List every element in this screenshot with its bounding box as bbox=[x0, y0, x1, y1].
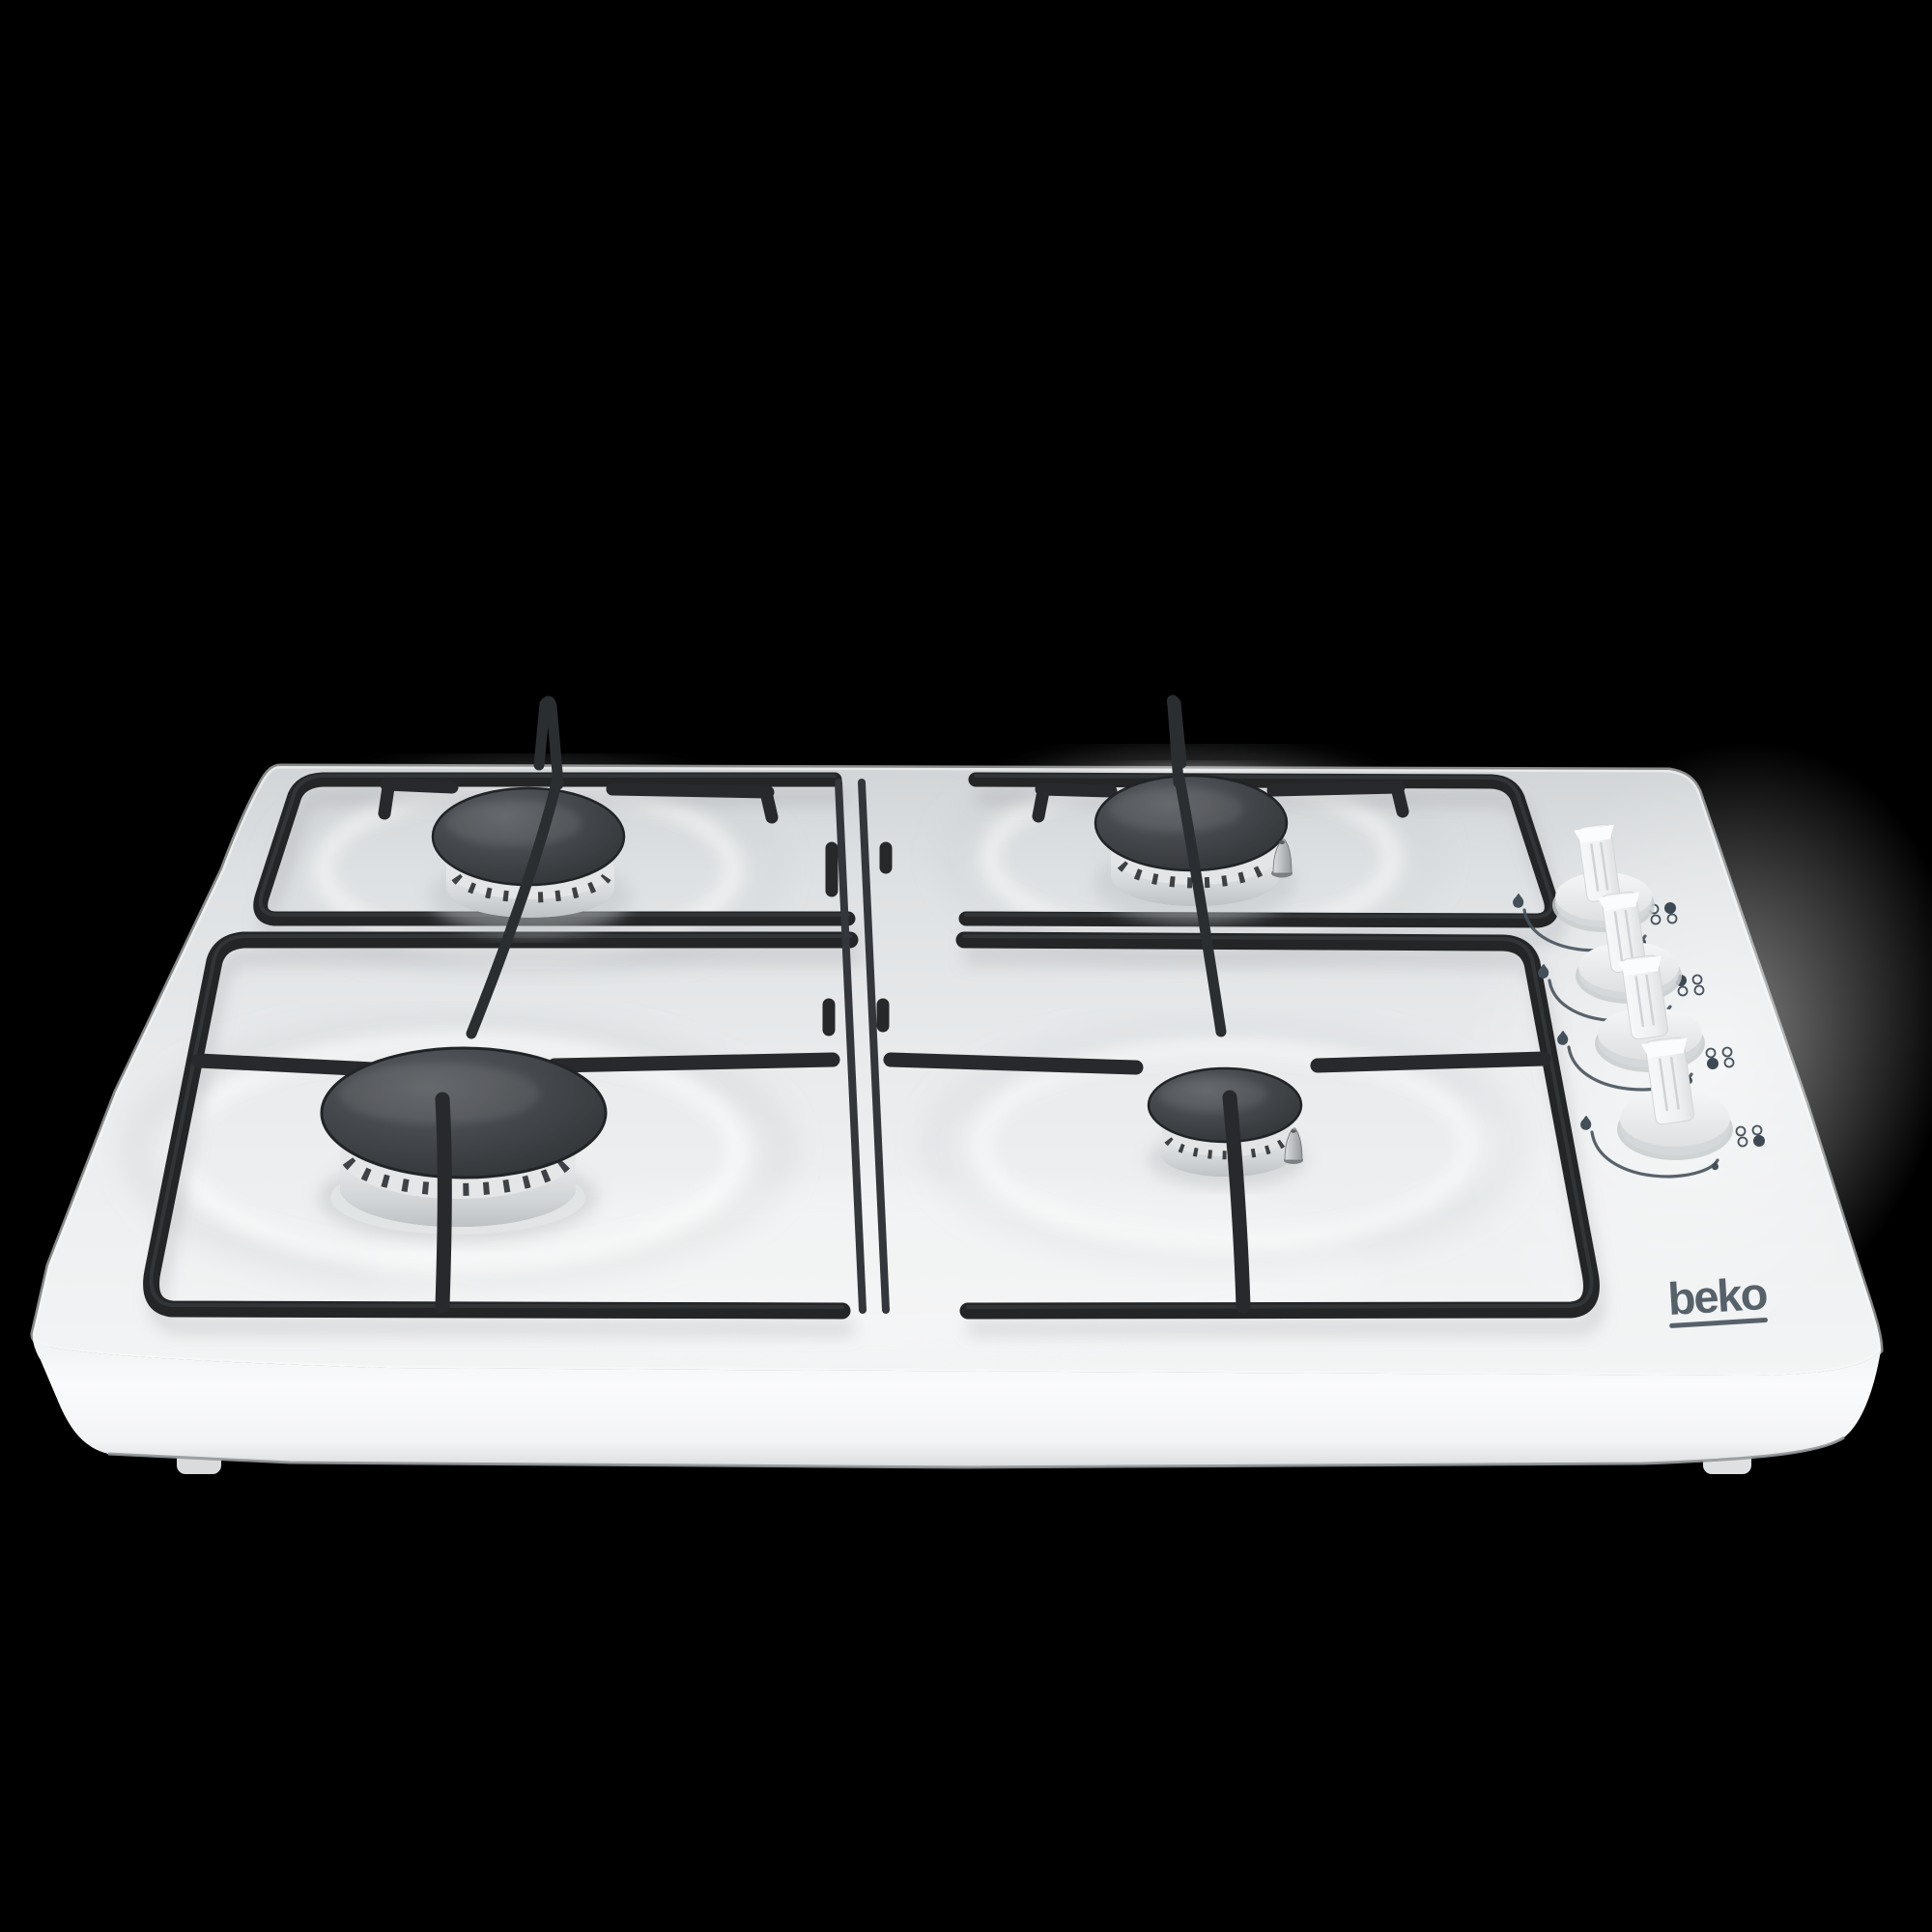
brand-logo: beko bbox=[1666, 1267, 1768, 1328]
burner-front-left bbox=[318, 1048, 606, 1242]
product-photo-gas-hob: beko bbox=[0, 0, 1932, 1932]
brand-logo-text: beko bbox=[1666, 1267, 1768, 1324]
